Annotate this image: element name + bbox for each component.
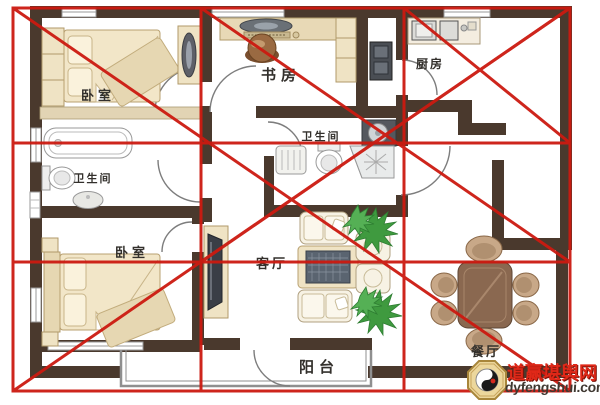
dining-chair <box>431 273 457 297</box>
window-bath1-left <box>31 128 41 162</box>
label-study: 书房 <box>261 66 301 84</box>
dresser-mirror <box>178 26 200 84</box>
door-study <box>210 66 256 112</box>
dining-chair <box>513 301 539 325</box>
dining-chair <box>513 273 539 297</box>
bedroom1-furniture <box>42 26 200 108</box>
low-cabinet <box>40 107 200 119</box>
tv-screen <box>208 234 222 310</box>
sofa-bottom <box>298 290 352 322</box>
label-bathroom-1: 卫生间 <box>74 171 113 185</box>
tv-console <box>204 226 228 318</box>
label-bedroom-2: 卧室 <box>115 245 149 260</box>
door-bathroom1 <box>158 160 200 202</box>
door-hall-dining <box>401 146 450 195</box>
label-bedroom-1: 卧室 <box>81 88 115 103</box>
floor-plan-image: 卧室 卫生间 卧室 书房 卫生间 厨房 客厅 阳台 餐厅 道赢堪舆网 dyfen… <box>0 0 600 400</box>
nightstand <box>42 332 58 346</box>
toilet <box>316 144 342 174</box>
toilet <box>42 166 75 190</box>
sofa-top <box>300 212 348 244</box>
washing-machine <box>276 146 306 174</box>
window-bedroom2-bottom <box>48 342 143 350</box>
armchair <box>356 264 390 293</box>
label-bathroom-2: 卫生间 <box>302 129 341 143</box>
fridge <box>370 42 392 80</box>
door-bedroom2 <box>162 222 192 252</box>
window-bedroom2-left <box>31 288 41 322</box>
plant <box>351 287 402 335</box>
shaft-box <box>30 192 40 218</box>
washbasin <box>73 192 103 209</box>
dining-furniture <box>431 236 539 354</box>
living-room-furniture <box>298 205 402 335</box>
coffee-table <box>298 246 358 288</box>
bookcase <box>336 18 356 82</box>
annotation-x-diag-5 <box>404 8 570 143</box>
label-dining-room: 餐厅 <box>470 344 501 359</box>
watermark-site-url: dyfengshui.com <box>504 379 600 395</box>
label-kitchen: 厨房 <box>416 56 444 71</box>
dining-chair <box>466 236 502 262</box>
bagua-taiji-icon <box>468 361 506 399</box>
nightstand <box>42 238 58 252</box>
label-balcony: 阳台 <box>299 358 339 376</box>
shower-stall <box>350 146 394 178</box>
